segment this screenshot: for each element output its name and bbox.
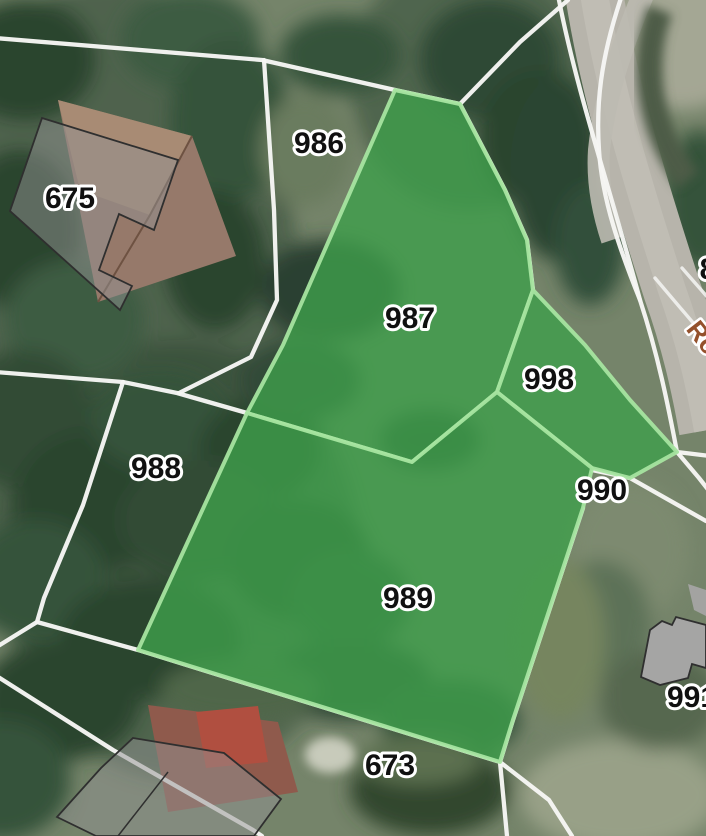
ground-bright-spot — [305, 737, 355, 773]
parcel-label-partial-8: 8 — [700, 253, 706, 286]
parcel-label-991: 991 — [667, 681, 706, 714]
parcel-label-986: 986 — [294, 127, 344, 160]
parcel-label-987: 987 — [385, 302, 435, 335]
parcel-label-673: 673 — [365, 749, 415, 782]
map-viewport[interactable]: 675 986 987 998 988 990 989 673 991 8 Rö — [0, 0, 706, 836]
parcel-label-988: 988 — [131, 452, 181, 485]
parcel-label-990: 990 — [577, 474, 627, 507]
parcel-label-989: 989 — [383, 582, 433, 615]
tree-blob — [280, 15, 400, 95]
parcel-label-675: 675 — [45, 182, 95, 215]
parcel-label-998: 998 — [524, 363, 574, 396]
cadastral-map: 675 986 987 998 988 990 989 673 991 8 Rö — [0, 0, 706, 836]
